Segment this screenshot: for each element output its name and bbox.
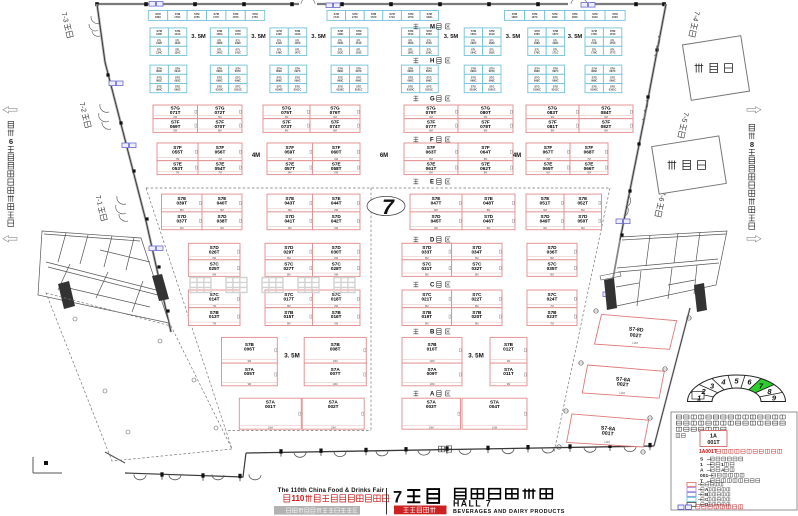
svg-text:175C: 175C <box>609 41 615 45</box>
svg-text:082T: 082T <box>601 124 612 129</box>
svg-text:8M: 8M <box>434 208 438 212</box>
svg-text:169C: 169C <box>426 15 432 19</box>
svg-text:097C: 097C <box>235 69 241 73</box>
svg-text:166C: 166C <box>534 32 540 36</box>
svg-text:031T: 031T <box>421 266 432 271</box>
svg-text:3. 5M: 3. 5M <box>568 34 583 40</box>
svg-text:8M: 8M <box>425 322 429 326</box>
svg-text:163C: 163C <box>612 15 618 19</box>
svg-text:015T: 015T <box>283 314 294 319</box>
svg-text:3. 5M: 3. 5M <box>468 353 483 360</box>
svg-text:3. 5M: 3. 5M <box>311 34 326 40</box>
svg-text:8M: 8M <box>425 256 429 260</box>
svg-text:167C: 167C <box>552 32 558 36</box>
svg-text:067T: 067T <box>543 149 554 154</box>
svg-text:066T: 066T <box>584 166 595 171</box>
svg-text:8M: 8M <box>550 273 554 277</box>
svg-text:094C: 094C <box>156 88 162 92</box>
svg-text:142C: 142C <box>276 32 282 36</box>
svg-text:030T: 030T <box>331 249 342 254</box>
svg-text:008T: 008T <box>330 347 341 352</box>
svg-text:137C: 137C <box>235 32 241 36</box>
svg-text:H: H <box>430 59 434 65</box>
svg-text:164C: 164C <box>592 15 598 19</box>
svg-text:168C: 168C <box>534 41 540 45</box>
svg-text:016T: 016T <box>331 314 342 319</box>
svg-text:—: — <box>707 463 712 468</box>
svg-text:8M: 8M <box>333 129 337 133</box>
svg-text:0101C: 0101C <box>425 88 433 92</box>
svg-text:0100C: 0100C <box>216 88 224 92</box>
svg-text:057T: 057T <box>284 166 295 171</box>
svg-text:12M: 12M <box>632 341 639 346</box>
svg-text:6M: 6M <box>484 115 488 119</box>
svg-text:056T: 056T <box>215 149 226 154</box>
svg-text:054T: 054T <box>215 166 226 171</box>
svg-text:174C: 174C <box>591 41 597 45</box>
svg-text:0101C: 0101C <box>234 88 242 92</box>
svg-text:10M: 10M <box>333 359 338 363</box>
svg-text:098C: 098C <box>470 78 476 82</box>
svg-text:9M: 9M <box>248 382 252 386</box>
svg-text:028T: 028T <box>331 266 342 271</box>
svg-text:167C: 167C <box>531 15 537 19</box>
svg-text:001—: 001— <box>700 473 713 479</box>
svg-text:8M: 8M <box>334 256 338 260</box>
svg-text:039T: 039T <box>176 201 187 206</box>
svg-text:110: 110 <box>292 494 305 503</box>
svg-text:024T: 024T <box>547 296 558 301</box>
svg-text:8M: 8M <box>475 273 479 277</box>
svg-text:9M: 9M <box>507 382 511 386</box>
svg-text:072T: 072T <box>214 110 225 115</box>
svg-text:079T: 079T <box>426 110 437 115</box>
svg-text:8M: 8M <box>434 226 438 230</box>
svg-text:006T: 006T <box>244 347 255 352</box>
svg-text:048T: 048T <box>483 201 494 206</box>
svg-text:166C: 166C <box>552 15 558 19</box>
svg-text:003T: 003T <box>426 404 437 409</box>
svg-text:061T: 061T <box>426 166 437 171</box>
svg-text:096C: 096C <box>407 69 413 73</box>
svg-text:095C: 095C <box>174 88 180 92</box>
svg-text:148C: 148C <box>337 32 343 36</box>
svg-text:171C: 171C <box>552 50 558 54</box>
svg-text:177C: 177C <box>213 15 219 19</box>
svg-text:6M: 6M <box>380 153 388 159</box>
svg-text:10M: 10M <box>429 359 434 363</box>
svg-text:8M: 8M <box>180 208 184 212</box>
svg-text:7M: 7M <box>176 171 180 175</box>
svg-text:001T: 001T <box>602 430 615 437</box>
svg-text:0100C: 0100C <box>533 88 541 92</box>
svg-text:0100C: 0100C <box>336 88 344 92</box>
svg-text:175C: 175C <box>252 15 258 19</box>
svg-text:156C: 156C <box>407 41 413 45</box>
svg-text:005T: 005T <box>244 371 255 376</box>
svg-text:134C: 134C <box>156 50 162 54</box>
svg-text:099C: 099C <box>294 78 300 82</box>
svg-text:053T: 053T <box>172 166 183 171</box>
svg-text:A: A <box>700 468 704 474</box>
svg-text:036T: 036T <box>547 249 558 254</box>
svg-text:C: C <box>430 283 435 289</box>
svg-text:7M: 7M <box>218 171 222 175</box>
svg-text:7M: 7M <box>218 157 222 161</box>
svg-text:HALL 7: HALL 7 <box>453 499 492 509</box>
svg-text:177C: 177C <box>609 50 615 54</box>
svg-text:020T: 020T <box>471 314 482 319</box>
svg-text:152C: 152C <box>337 50 343 54</box>
svg-text:096C: 096C <box>276 69 282 73</box>
svg-text:8M: 8M <box>475 304 479 308</box>
svg-text:8M: 8M <box>220 208 224 212</box>
svg-text:6M: 6M <box>587 171 591 175</box>
svg-text:8M: 8M <box>288 226 292 230</box>
svg-text:10M: 10M <box>268 425 273 429</box>
svg-text:135C: 135C <box>174 50 180 54</box>
svg-text:014T: 014T <box>209 296 220 301</box>
svg-text:098C: 098C <box>534 78 540 82</box>
svg-text:002T: 002T <box>617 381 630 388</box>
svg-text:179C: 179C <box>174 15 180 19</box>
svg-text:154C: 154C <box>407 32 413 36</box>
svg-text:6M: 6M <box>543 208 547 212</box>
svg-text:098C: 098C <box>591 78 597 82</box>
svg-text:8M: 8M <box>429 129 433 133</box>
svg-text:1: 1 <box>721 462 724 468</box>
svg-text:8M: 8M <box>334 273 338 277</box>
svg-text:8M: 8M <box>334 322 338 326</box>
svg-text:096C: 096C <box>591 69 597 73</box>
svg-text:0101C: 0101C <box>355 88 363 92</box>
svg-text:040T: 040T <box>217 201 228 206</box>
svg-text:6M: 6M <box>546 171 550 175</box>
svg-text:098C: 098C <box>216 78 222 82</box>
svg-text:146C: 146C <box>276 50 282 54</box>
svg-text:049T: 049T <box>540 218 551 223</box>
svg-text:2: 2 <box>701 387 707 396</box>
svg-text:068T: 068T <box>584 149 595 154</box>
svg-text:M: M <box>430 25 435 31</box>
svg-text:6M: 6M <box>604 115 608 119</box>
svg-text:155C: 155C <box>426 32 432 36</box>
svg-text:043T: 043T <box>284 201 295 206</box>
svg-text:011T: 011T <box>503 371 514 376</box>
svg-text:8M: 8M <box>551 129 555 133</box>
svg-text:8M: 8M <box>212 256 216 260</box>
svg-text:099C: 099C <box>426 78 432 82</box>
svg-text:9M: 9M <box>507 359 511 363</box>
svg-text:6M: 6M <box>543 226 547 230</box>
svg-text:037T: 037T <box>176 218 187 223</box>
svg-text:8M: 8M <box>285 129 289 133</box>
svg-text:8M: 8M <box>334 226 338 230</box>
svg-text:10M: 10M <box>331 425 336 429</box>
svg-text:6M: 6M <box>333 115 337 119</box>
svg-text:058T: 058T <box>331 166 342 171</box>
svg-text:093C: 093C <box>174 78 180 82</box>
svg-text:063T: 063T <box>426 149 437 154</box>
svg-text:041T: 041T <box>284 218 295 223</box>
svg-text:3. 5M: 3. 5M <box>191 34 206 40</box>
svg-text:8M: 8M <box>334 304 338 308</box>
svg-text:E: E <box>430 180 434 186</box>
svg-text:029T: 029T <box>283 249 294 254</box>
svg-text:143C: 143C <box>294 32 300 36</box>
svg-text:091C: 091C <box>174 69 180 73</box>
svg-text:151C: 151C <box>356 41 362 45</box>
svg-text:025T: 025T <box>209 266 220 271</box>
svg-text:0100C: 0100C <box>407 88 415 92</box>
svg-text:133C: 133C <box>174 41 180 45</box>
svg-text:084T: 084T <box>601 110 612 115</box>
svg-text:—: — <box>707 469 712 474</box>
svg-text:075T: 075T <box>281 110 292 115</box>
svg-text:0101C: 0101C <box>294 88 302 92</box>
svg-text:002T: 002T <box>629 332 642 339</box>
svg-text:8M: 8M <box>425 304 429 308</box>
svg-text:044T: 044T <box>331 201 342 206</box>
svg-text:009T: 009T <box>427 371 438 376</box>
svg-text:8M: 8M <box>212 273 216 277</box>
svg-text:097C: 097C <box>489 69 495 73</box>
svg-text:038T: 038T <box>217 218 228 223</box>
svg-text:078T: 078T <box>480 124 491 129</box>
svg-text:7: 7 <box>382 195 395 219</box>
svg-text:159C: 159C <box>426 50 432 54</box>
svg-text:8M: 8M <box>484 129 488 133</box>
svg-text:096C: 096C <box>337 69 343 73</box>
svg-text:098C: 098C <box>276 78 282 82</box>
svg-text:033T: 033T <box>421 249 432 254</box>
svg-text:017T: 017T <box>283 296 294 301</box>
svg-text:4M: 4M <box>252 153 260 159</box>
svg-text:163C: 163C <box>489 41 495 45</box>
svg-text:013T: 013T <box>209 314 220 319</box>
svg-text:139C: 139C <box>235 41 241 45</box>
svg-text:073T: 073T <box>281 124 292 129</box>
svg-text:065T: 065T <box>543 166 554 171</box>
svg-text:0101C: 0101C <box>609 88 617 92</box>
svg-text:8M: 8M <box>334 208 338 212</box>
svg-text:176C: 176C <box>232 15 238 19</box>
svg-text:8M: 8M <box>484 171 488 175</box>
svg-text:170C: 170C <box>534 50 540 54</box>
svg-text:3. 5M: 3. 5M <box>444 34 459 40</box>
svg-text:D: D <box>705 502 708 507</box>
svg-text:076T: 076T <box>330 110 341 115</box>
svg-text:165C: 165C <box>489 50 495 54</box>
svg-text:098C: 098C <box>337 78 343 82</box>
svg-text:F: F <box>430 138 434 144</box>
svg-text:0100C: 0100C <box>470 88 478 92</box>
svg-text:055T: 055T <box>172 149 183 154</box>
svg-text:138C: 138C <box>216 41 222 45</box>
svg-text:6M: 6M <box>285 115 289 119</box>
svg-text:153C: 153C <box>356 50 362 54</box>
svg-text:1A001T: 1A001T <box>699 449 717 455</box>
svg-text:077T: 077T <box>426 124 437 129</box>
svg-text:3. 5M: 3. 5M <box>251 34 266 40</box>
svg-text:0101C: 0101C <box>552 88 560 92</box>
svg-text:023T: 023T <box>547 314 558 319</box>
svg-text:074T: 074T <box>330 124 341 129</box>
svg-text:G: G <box>430 97 435 103</box>
svg-text:050T: 050T <box>577 218 588 223</box>
svg-text:045T: 045T <box>431 218 442 223</box>
svg-text:096C: 096C <box>216 69 222 73</box>
svg-text:019T: 019T <box>421 314 432 319</box>
svg-text:042T: 042T <box>331 218 342 223</box>
svg-text:161C: 161C <box>489 32 495 36</box>
svg-text:1: 1 <box>700 462 703 468</box>
svg-text:173C: 173C <box>609 32 615 36</box>
svg-text:12M: 12M <box>604 440 611 445</box>
svg-text:098C: 098C <box>407 78 413 82</box>
svg-text:8M: 8M <box>334 171 338 175</box>
svg-text:099C: 099C <box>552 78 558 82</box>
svg-text:004T: 004T <box>489 404 500 409</box>
svg-text:168C: 168C <box>511 15 517 19</box>
svg-text:162C: 162C <box>470 41 476 45</box>
svg-text:021T: 021T <box>421 296 432 301</box>
svg-text:059T: 059T <box>284 149 295 154</box>
svg-text:8M: 8M <box>287 256 291 260</box>
svg-text:131C: 131C <box>174 32 180 36</box>
svg-text:7M: 7M <box>546 157 550 161</box>
svg-text:7M: 7M <box>212 322 216 326</box>
svg-text:6: 6 <box>9 137 13 146</box>
svg-text:147C: 147C <box>294 50 300 54</box>
svg-text:A: A <box>430 392 435 398</box>
svg-text:8M: 8M <box>487 208 491 212</box>
svg-text:165C: 165C <box>572 15 578 19</box>
svg-text:8M: 8M <box>487 226 491 230</box>
svg-text:0101C: 0101C <box>488 88 496 92</box>
svg-text:172C: 172C <box>370 15 376 19</box>
svg-text:7M: 7M <box>587 157 591 161</box>
svg-text:170C: 170C <box>408 15 414 19</box>
svg-text:071T: 071T <box>170 110 181 115</box>
svg-text:174C: 174C <box>333 15 339 19</box>
svg-text:6M: 6M <box>220 226 224 230</box>
svg-text:169C: 169C <box>552 41 558 45</box>
svg-text:8M: 8M <box>288 208 292 212</box>
svg-text:6M: 6M <box>581 208 585 212</box>
svg-text:8M: 8M <box>288 171 292 175</box>
svg-text:8M: 8M <box>429 171 433 175</box>
svg-text:8M: 8M <box>550 256 554 260</box>
svg-text:097C: 097C <box>426 69 432 73</box>
svg-text:069T: 069T <box>170 124 181 129</box>
svg-text:141C: 141C <box>235 50 241 54</box>
svg-text:10M: 10M <box>429 425 434 429</box>
svg-text:046T: 046T <box>483 218 494 223</box>
svg-text:001T: 001T <box>265 404 276 409</box>
svg-text:8M: 8M <box>425 273 429 277</box>
svg-text:070T: 070T <box>214 124 225 129</box>
svg-text:8M: 8M <box>475 322 479 326</box>
svg-text:8M: 8M <box>287 273 291 277</box>
svg-text:002T: 002T <box>328 404 339 409</box>
svg-text:130C: 130C <box>156 32 162 36</box>
svg-text:052T: 052T <box>577 201 588 206</box>
svg-text:097C: 097C <box>294 69 300 73</box>
svg-text:064T: 064T <box>480 149 491 154</box>
svg-text:099C: 099C <box>489 78 495 82</box>
svg-text:081T: 081T <box>547 124 558 129</box>
svg-text:018T: 018T <box>331 296 342 301</box>
svg-text:099C: 099C <box>356 78 362 82</box>
svg-text:097C: 097C <box>609 69 615 73</box>
svg-text:173C: 173C <box>352 15 358 19</box>
svg-text:096C: 096C <box>534 69 540 73</box>
svg-text:8: 8 <box>750 140 754 149</box>
svg-text:176C: 176C <box>591 50 597 54</box>
svg-text:B: B <box>430 330 435 336</box>
svg-text:—: — <box>707 479 712 484</box>
svg-text:6M: 6M <box>173 115 177 119</box>
svg-text:132C: 132C <box>156 41 162 45</box>
svg-text:7M: 7M <box>550 304 554 308</box>
svg-text:8M: 8M <box>287 304 291 308</box>
svg-text:172C: 172C <box>591 32 597 36</box>
svg-text:171C: 171C <box>389 15 395 19</box>
svg-text:092C: 092C <box>156 78 162 82</box>
svg-text:034T: 034T <box>471 249 482 254</box>
svg-text:096C: 096C <box>470 69 476 73</box>
svg-text:8M: 8M <box>218 129 222 133</box>
svg-text:062T: 062T <box>480 166 491 171</box>
svg-text:099C: 099C <box>235 78 241 82</box>
svg-text:12M: 12M <box>619 391 626 396</box>
svg-text:8M: 8M <box>334 157 338 161</box>
svg-text:8M: 8M <box>173 129 177 133</box>
svg-text:136C: 136C <box>216 32 222 36</box>
svg-text:7M: 7M <box>176 157 180 161</box>
svg-text:022T: 022T <box>471 296 482 301</box>
svg-text:160C: 160C <box>470 32 476 36</box>
svg-text:7M: 7M <box>550 322 554 326</box>
svg-text:180C: 180C <box>155 15 161 19</box>
svg-text:10M: 10M <box>333 382 338 386</box>
svg-text:4M: 4M <box>513 153 521 159</box>
svg-text:007T: 007T <box>330 371 341 376</box>
svg-text:097C: 097C <box>356 69 362 73</box>
svg-text:8M: 8M <box>475 256 479 260</box>
svg-text:097C: 097C <box>552 69 558 73</box>
svg-text:10M: 10M <box>429 382 434 386</box>
svg-text:080T: 080T <box>480 110 491 115</box>
svg-text:9M: 9M <box>248 359 252 363</box>
svg-text:—: — <box>707 458 712 463</box>
svg-text:8M: 8M <box>604 129 608 133</box>
svg-text:10M: 10M <box>492 425 497 429</box>
svg-text:6M: 6M <box>429 115 433 119</box>
svg-text:010T: 010T <box>427 347 438 352</box>
svg-text:047T: 047T <box>431 201 442 206</box>
svg-text:140C: 140C <box>216 50 222 54</box>
svg-text:4: 4 <box>720 378 726 387</box>
svg-text:060T: 060T <box>331 149 342 154</box>
svg-text:144C: 144C <box>276 41 282 45</box>
svg-text:178C: 178C <box>194 15 200 19</box>
svg-text:6M: 6M <box>581 226 585 230</box>
svg-text:150C: 150C <box>337 41 343 45</box>
svg-text:BEVERAGES AND DAIRY PRODUCTS: BEVERAGES AND DAIRY PRODUCTS <box>453 509 565 515</box>
svg-text:001T: 001T <box>707 440 720 446</box>
